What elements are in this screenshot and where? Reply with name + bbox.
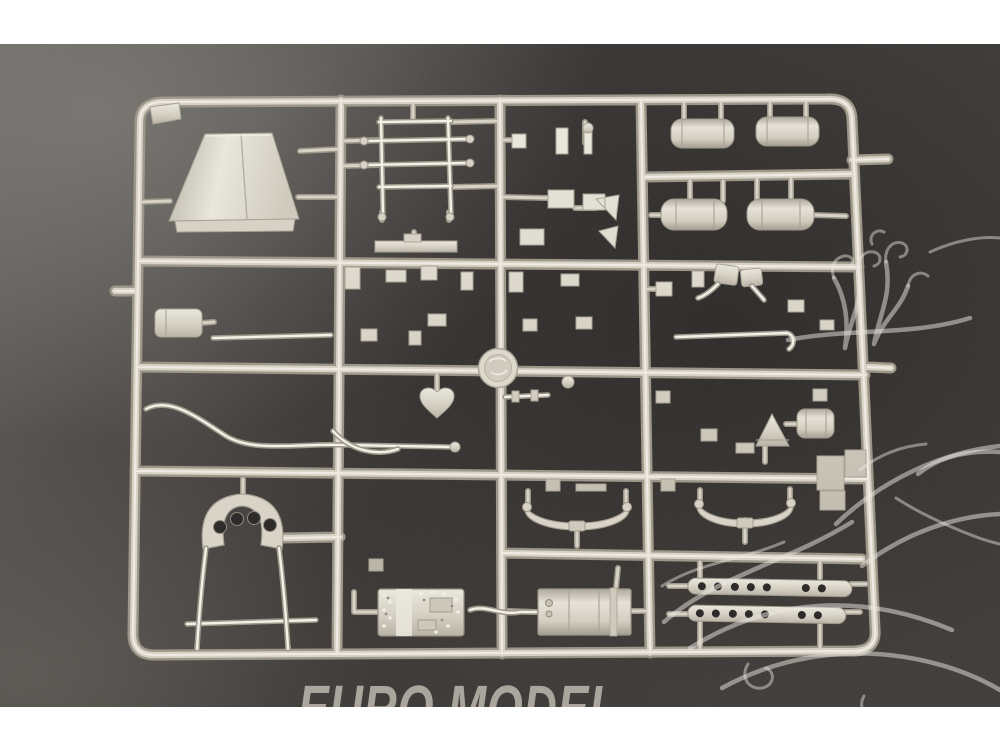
page: { "watermark": { "text": "EURO MODEL" },… bbox=[0, 0, 1000, 750]
part-round-disc bbox=[479, 349, 518, 388]
sprue-photo: EURO MODEL bbox=[0, 44, 1000, 707]
part-gearbox bbox=[538, 588, 631, 636]
watermark-text: EURO MODEL bbox=[298, 672, 618, 707]
part-small-canister bbox=[797, 409, 834, 438]
part-canister bbox=[155, 309, 202, 337]
sprue-illustration: EURO MODEL bbox=[0, 44, 1000, 707]
part-engine-block bbox=[378, 589, 464, 636]
